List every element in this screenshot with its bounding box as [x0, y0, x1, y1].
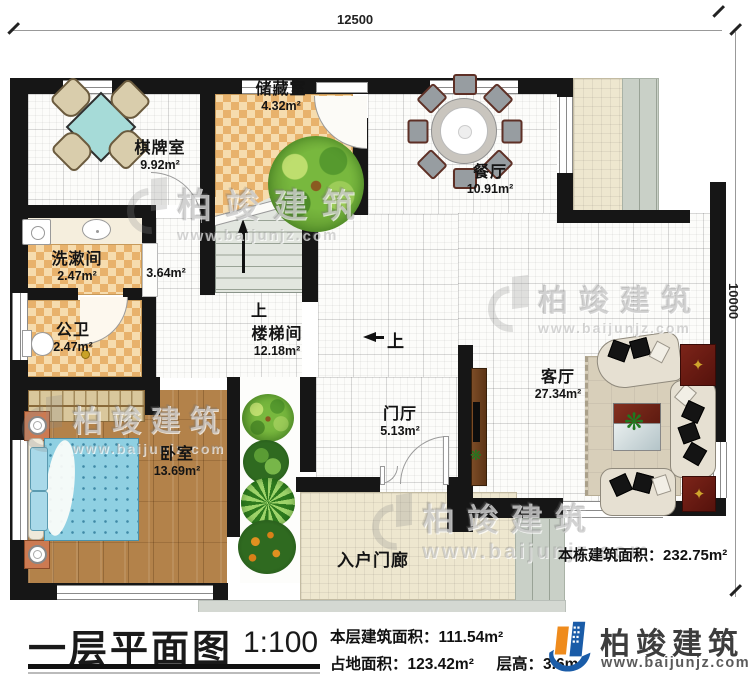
patio-deck	[573, 78, 624, 214]
tree	[268, 136, 364, 232]
bed-pillow	[30, 447, 48, 491]
room-label-bedroom: 卧室 13.69m²	[154, 446, 201, 478]
chair	[502, 120, 523, 144]
wall	[557, 173, 573, 213]
wall	[142, 295, 156, 377]
wall	[200, 94, 215, 295]
window	[12, 440, 28, 540]
room-label-wc: 公卫 2.47m²	[53, 322, 93, 354]
wall	[296, 477, 380, 492]
side-table: ✦	[680, 344, 716, 386]
foyer-up-label: 上	[387, 327, 404, 352]
room-label-storage: 储藏室 4.32m²	[255, 81, 306, 113]
title-underline	[28, 664, 320, 669]
entry-door-small-leaf	[380, 466, 385, 485]
lamp-icon	[28, 416, 47, 435]
room-label-stairhall: 楼梯间 12.18m²	[251, 326, 302, 358]
dimension-right-value: 10000	[726, 283, 741, 319]
sink-icon	[82, 219, 111, 240]
table-plant-icon: ❋	[624, 408, 644, 437]
room-label-chess: 棋牌室 9.92m²	[134, 140, 185, 172]
room-label-porch: 入户门廊	[337, 551, 409, 570]
dining-table	[431, 98, 497, 164]
room-label-wash: 洗漱间 2.47m²	[51, 251, 102, 283]
stair-arrow-stem	[242, 233, 245, 273]
patio-planks	[622, 78, 659, 214]
tv-icon	[473, 402, 480, 442]
plan-scale: 1:100	[243, 626, 318, 660]
chair	[408, 120, 429, 144]
plant	[238, 520, 296, 574]
lamp-icon	[28, 545, 47, 564]
wall	[557, 78, 573, 97]
dimension-tick	[712, 5, 724, 17]
company-logo-icon	[540, 616, 596, 678]
total-building-area: 本栋建筑面积：232.75m²	[558, 544, 727, 565]
cabinet-plant-icon: ❋	[470, 447, 482, 464]
toilet-bowl-icon	[31, 332, 54, 356]
stair-direction-arrow	[238, 219, 248, 233]
wall	[20, 288, 78, 300]
entry-door-leaf	[443, 436, 449, 485]
room-label-dining: 餐厅 10.91m²	[467, 164, 514, 196]
company-website: www.baijunjz.com	[601, 655, 750, 671]
floor-plan-canvas: 12500 10000	[0, 0, 750, 686]
side-table: ✦	[682, 476, 716, 512]
wall	[143, 377, 160, 415]
storage-door-leaf	[316, 82, 368, 93]
dimension-top-value: 12500	[337, 12, 373, 27]
washing-machine-icon	[22, 219, 51, 245]
hall-area-label: 3.64m²	[146, 266, 186, 280]
wall	[10, 205, 150, 218]
wall	[473, 498, 563, 518]
window	[57, 585, 213, 600]
wall	[557, 210, 690, 223]
hall-floor	[318, 214, 458, 378]
title-underline-thin	[28, 672, 320, 674]
dimension-line-top	[12, 30, 722, 31]
dimension-tick	[7, 22, 19, 34]
bed-pillow	[30, 491, 48, 531]
room-label-foyer: 门厅 5.13m²	[380, 406, 420, 438]
up-arrow-stem	[374, 336, 384, 339]
title-block: 一层平面图 1:100 本层建筑面积：111.54m² 占地面积：123.42m…	[0, 612, 750, 686]
plant	[242, 394, 294, 442]
room-label-living: 客厅 27.34m²	[535, 369, 582, 401]
patio-sliding-door	[559, 97, 573, 173]
floor-area-stat: 本层建筑面积：111.54m²	[330, 625, 503, 647]
wall	[10, 377, 160, 390]
chair	[453, 74, 477, 95]
wall	[300, 377, 316, 472]
stair-up-label: 上	[251, 297, 267, 321]
wall	[227, 377, 240, 537]
